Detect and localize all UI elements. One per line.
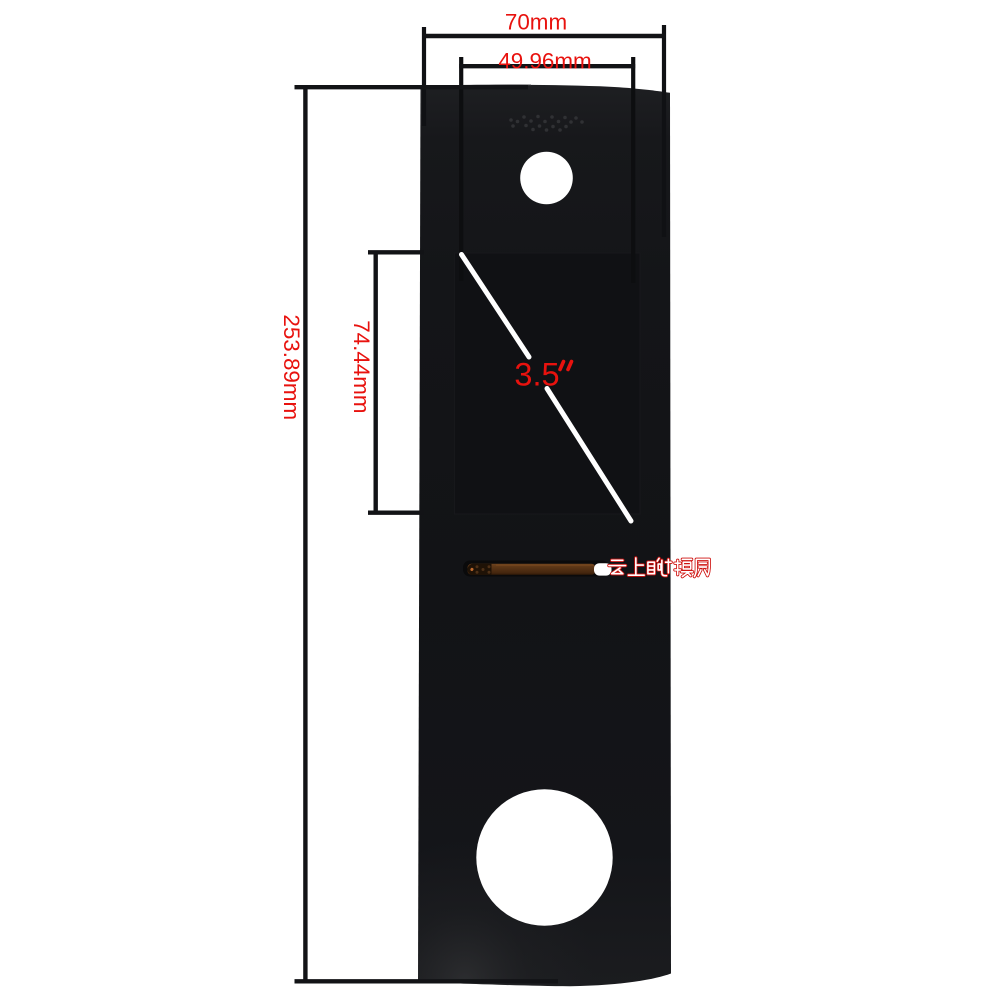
svg-text:70mm: 70mm <box>505 10 567 35</box>
svg-text:49.96mm: 49.96mm <box>498 48 591 73</box>
svg-text:253.89mm: 253.89mm <box>279 314 304 420</box>
svg-text:74.44mm: 74.44mm <box>349 320 374 413</box>
svg-text:3.5: 3.5 <box>514 357 559 393</box>
